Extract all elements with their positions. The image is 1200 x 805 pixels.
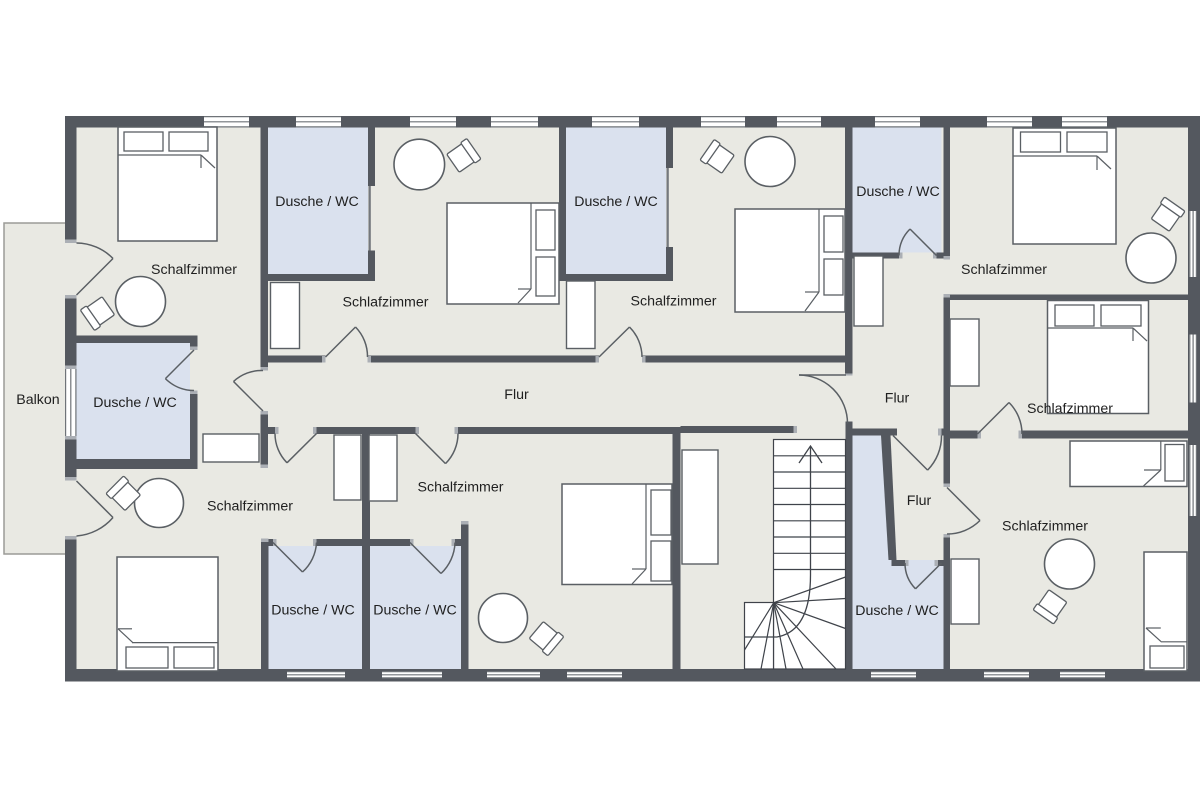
svg-text:Schalfzimmer: Schalfzimmer [418,480,504,496]
svg-text:Dusche / WC: Dusche / WC [856,184,940,200]
svg-text:Schalfzimmer: Schalfzimmer [151,262,237,278]
svg-text:Schlafzimmer: Schlafzimmer [1027,401,1113,417]
svg-text:Schlafzimmer: Schlafzimmer [961,262,1047,278]
svg-text:Dusche / WC: Dusche / WC [275,194,359,210]
svg-text:Dusche / WC: Dusche / WC [271,603,355,619]
svg-text:Dusche / WC: Dusche / WC [93,395,177,411]
svg-text:Balkon: Balkon [16,392,59,408]
svg-text:Dusche / WC: Dusche / WC [855,603,939,619]
svg-text:Dusche / WC: Dusche / WC [574,194,658,210]
svg-text:Dusche / WC: Dusche / WC [373,603,457,619]
svg-text:Flur: Flur [907,493,932,509]
svg-text:Schalfzimmer: Schalfzimmer [631,294,717,310]
svg-text:Schlafzimmer: Schlafzimmer [1002,519,1088,535]
svg-text:Flur: Flur [504,387,529,403]
svg-text:Flur: Flur [885,391,910,407]
svg-text:Schlafzimmer: Schlafzimmer [343,295,429,311]
svg-text:Schalfzimmer: Schalfzimmer [207,499,293,515]
